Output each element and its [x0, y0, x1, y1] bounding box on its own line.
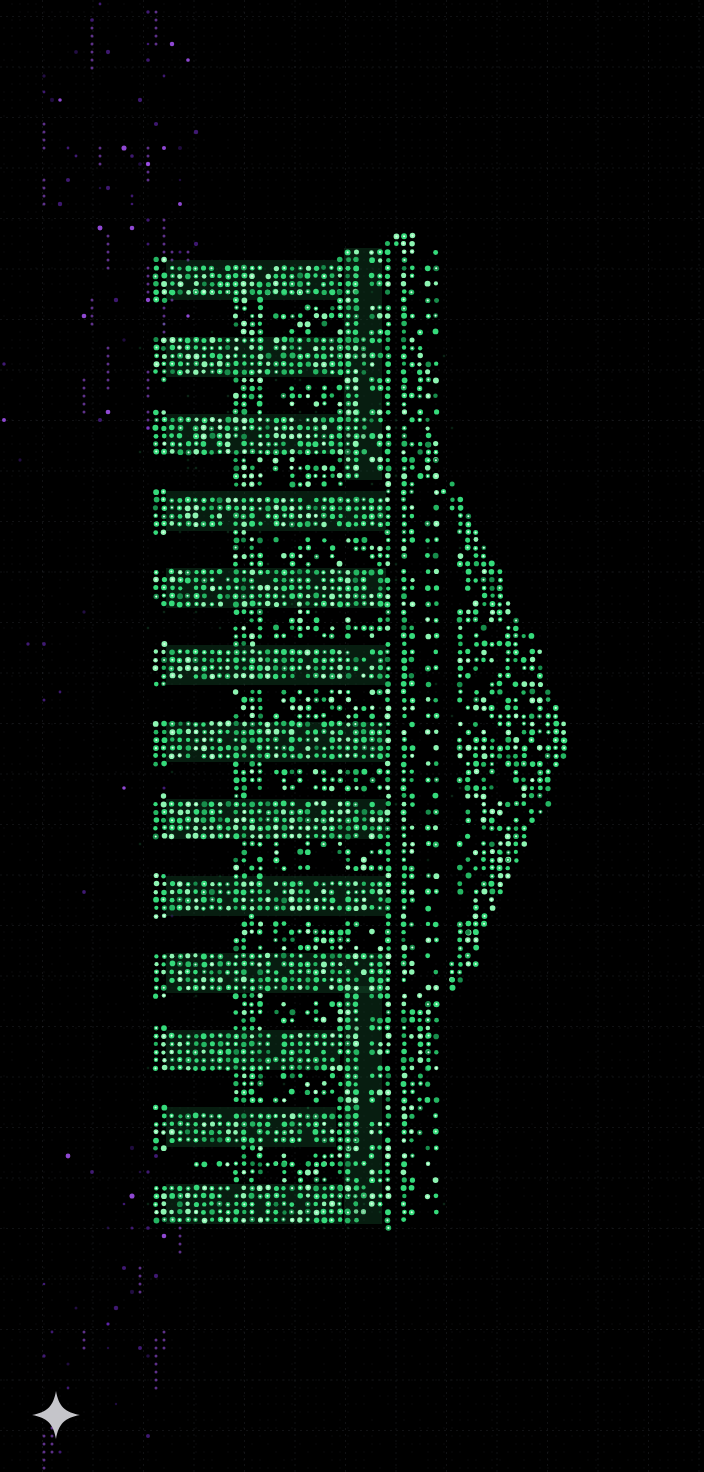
ascii-temple-artwork: [0, 0, 704, 1472]
terminal-art-screen: [0, 0, 704, 1472]
